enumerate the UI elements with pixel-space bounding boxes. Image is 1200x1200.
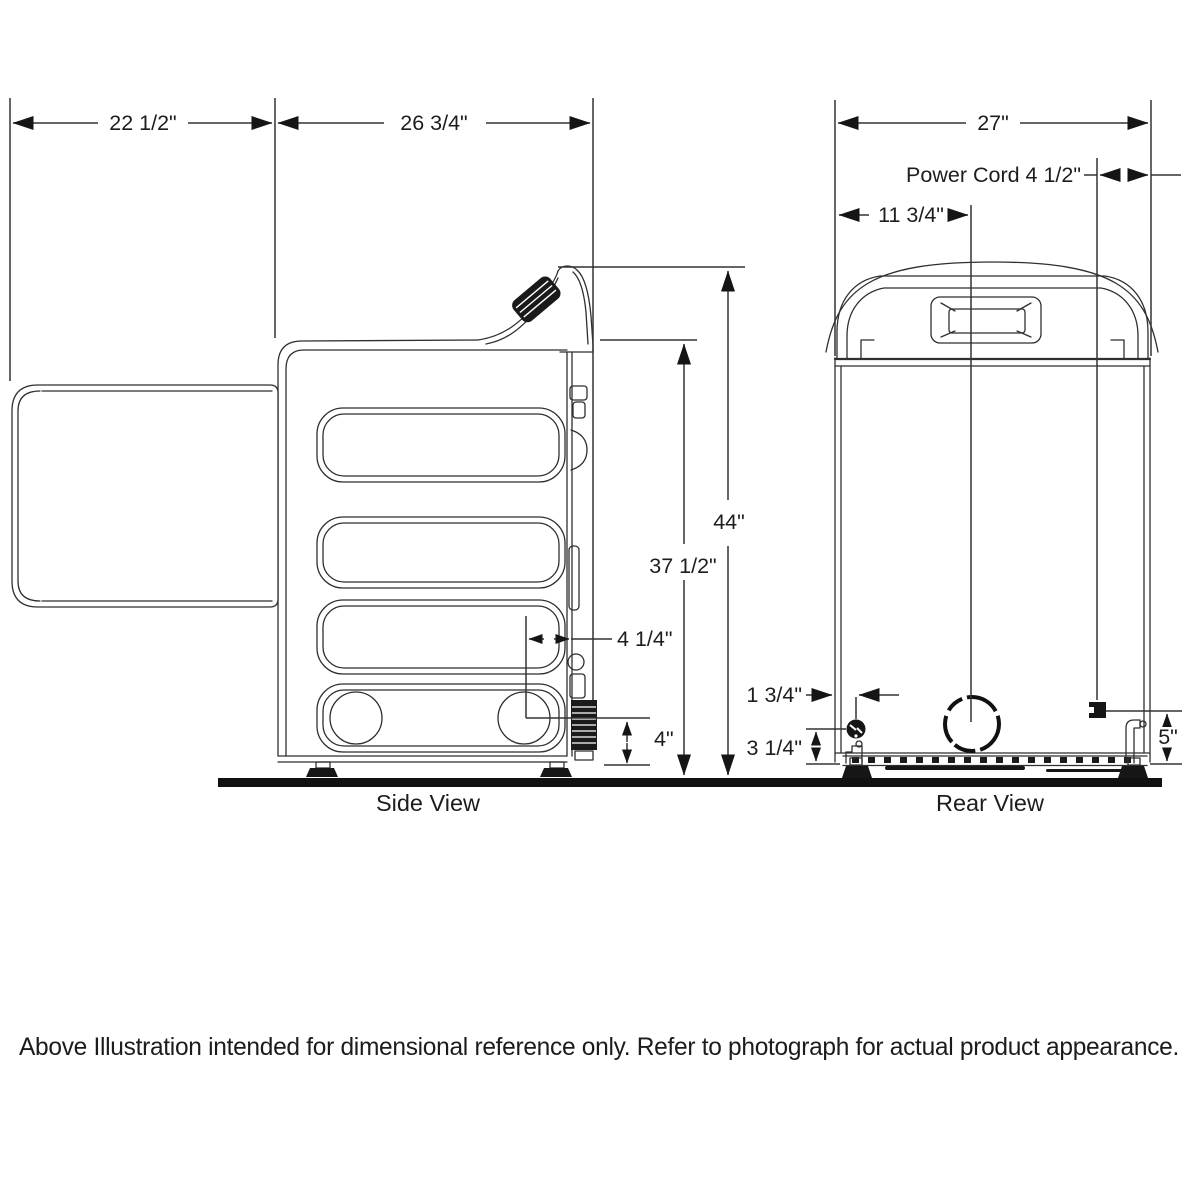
rear-view-label: Rear View [936, 790, 1045, 816]
side-view-label: Side View [376, 790, 481, 816]
dryer-rear-body [826, 262, 1158, 778]
dim-total-depth: 26 3/4" [278, 98, 593, 700]
power-cord-port-icon [847, 720, 866, 739]
dim-power-cord: Power Cord 4 1/2" [906, 158, 1181, 700]
dim-cord-height: 3 1/4" [747, 729, 846, 764]
side-view-drawing [12, 266, 597, 777]
dim-label-rear-width: 27" [977, 111, 1009, 135]
dim-exhaust-from-back: 4 1/4" [526, 616, 672, 718]
console-knob-icon [509, 274, 563, 326]
dim-door-open-depth: 22 1/2" [10, 98, 275, 381]
side-leveling-feet [306, 762, 572, 777]
side-panel-embossing [317, 408, 565, 752]
dryer-side-body [278, 266, 593, 762]
dim-label-total-depth: 26 3/4" [400, 111, 467, 135]
dim-vent-offset: 11 3/4" [839, 203, 971, 722]
open-door [12, 385, 278, 607]
dim-body-height: 37 1/2" [600, 340, 724, 775]
dim-label-power-cord: Power Cord 4 1/2" [906, 163, 1081, 187]
dim-rear-width: 27" [835, 100, 1151, 356]
dim-exhaust-height: 4" [526, 718, 674, 765]
gas-connection-icon [1089, 702, 1106, 718]
dim-cord-from-left: 1 3/4" [747, 683, 899, 719]
exhaust-vent-icon [945, 697, 999, 751]
rear-handle [931, 297, 1041, 343]
dim-label-vent-offset: 11 3/4" [878, 203, 944, 227]
footnote-text: Above Illustration intended for dimensio… [19, 1033, 1179, 1061]
side-vent-circle-left [330, 692, 382, 744]
ground-line [218, 778, 1162, 787]
dim-label-gas-height: 5" [1158, 725, 1178, 749]
dimension-diagram-page: 22 1/2" 26 3/4" 27" Power Cord 4 1/2" 11… [0, 0, 1200, 1200]
dim-label-cord-from-left: 1 3/4" [747, 683, 802, 707]
exhaust-duct-icon [571, 700, 597, 760]
rear-base-rail [843, 720, 1147, 772]
dim-label-total-height: 44" [713, 510, 745, 534]
dim-label-exhaust-height: 4" [654, 727, 674, 751]
rear-view-drawing [826, 262, 1158, 778]
dim-label-cord-height: 3 1/4" [747, 736, 802, 760]
dim-label-exhaust-from-back: 4 1/4" [617, 627, 672, 651]
dimension-diagram: 22 1/2" 26 3/4" 27" Power Cord 4 1/2" 11… [0, 0, 1200, 1200]
dim-label-door-open-depth: 22 1/2" [109, 111, 176, 135]
dim-label-body-height: 37 1/2" [649, 554, 716, 578]
